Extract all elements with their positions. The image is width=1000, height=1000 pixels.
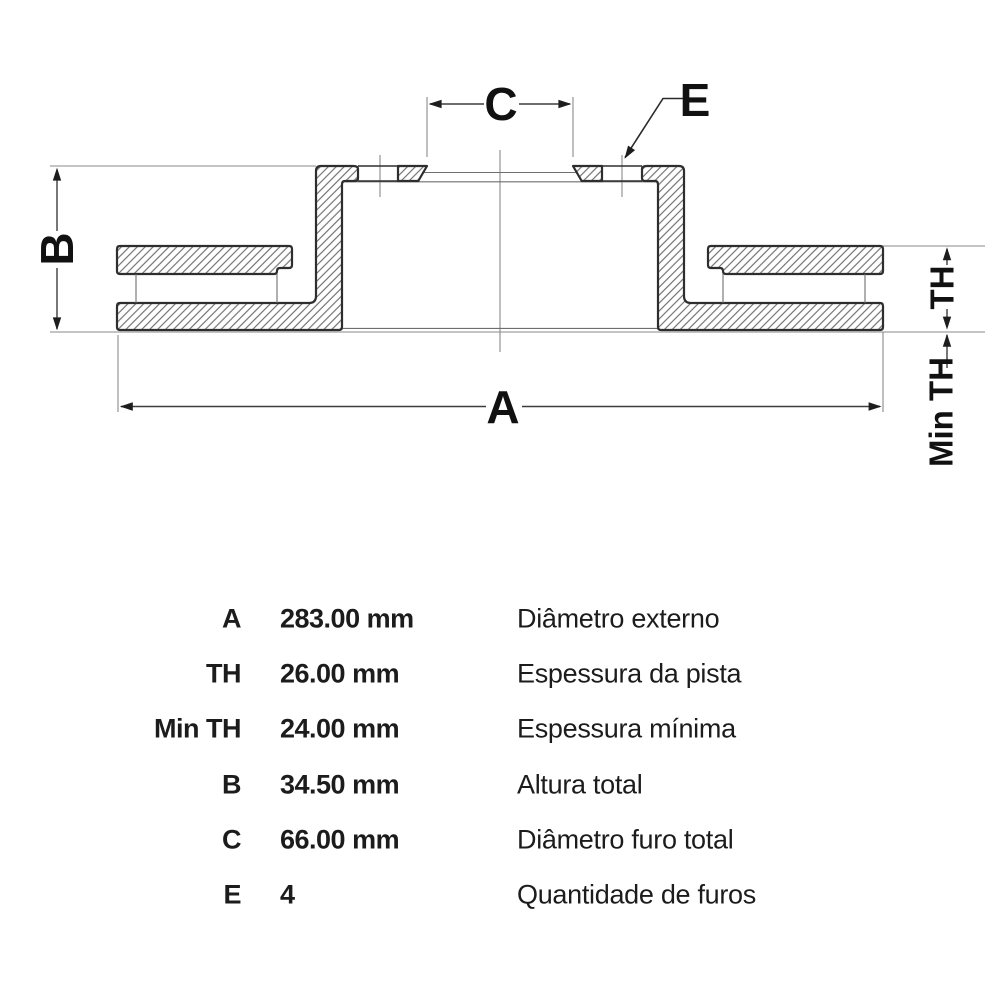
dim-e-label: E: [680, 74, 711, 126]
spec-label: A: [222, 603, 241, 634]
spec-row-th: TH 26.00 mm Espessura da pista: [0, 646, 1000, 701]
spec-value: 26.00 mm: [280, 658, 399, 689]
dim-minth-label: Min TH: [923, 357, 960, 467]
spec-label: TH: [206, 658, 241, 689]
spec-label: B: [222, 769, 241, 800]
spec-value: 4: [280, 880, 295, 911]
spec-row-a: A 283.00 mm Diâmetro externo: [0, 591, 1000, 646]
upper-left-friction-plate: [117, 246, 292, 274]
spec-desc: Diâmetro externo: [517, 603, 719, 634]
dim-e-leader: [625, 99, 683, 158]
dim-b-label: B: [31, 232, 83, 265]
upper-right-friction-plate: [708, 246, 883, 274]
spec-desc: Espessura mínima: [517, 714, 736, 745]
spec-label: E: [223, 880, 241, 911]
brake-disc-cross-section-drawing: B C E A TH Min TH: [0, 0, 1000, 565]
spec-row-c: C 66.00 mm Diâmetro furo total: [0, 812, 1000, 867]
spec-row-e: E 4 Quantidade de furos: [0, 867, 1000, 922]
brake-disc-spec-sheet: B C E A TH Min TH A 283.00 mm Diâmetro e…: [0, 0, 1000, 1000]
dim-c-label: C: [484, 78, 517, 130]
bore-edge-right: [573, 166, 602, 181]
spec-value: 283.00 mm: [280, 603, 414, 634]
spec-value: 66.00 mm: [280, 824, 399, 855]
spec-row-minth: Min TH 24.00 mm Espessura mínima: [0, 702, 1000, 757]
spec-desc: Quantidade de furos: [517, 880, 756, 911]
spec-desc: Altura total: [517, 769, 642, 800]
spec-value: 34.50 mm: [280, 769, 399, 800]
dim-a-label: A: [486, 381, 519, 433]
spec-desc: Espessura da pista: [517, 658, 741, 689]
dim-th-label: TH: [924, 266, 961, 310]
spec-value: 24.00 mm: [280, 714, 399, 745]
spec-label: Min TH: [154, 714, 241, 745]
bore-edge-left: [398, 166, 427, 181]
spec-desc: Diâmetro furo total: [517, 824, 733, 855]
spec-label: C: [222, 824, 241, 855]
spec-row-b: B 34.50 mm Altura total: [0, 757, 1000, 812]
spec-table: A 283.00 mm Diâmetro externo TH 26.00 mm…: [0, 591, 1000, 923]
